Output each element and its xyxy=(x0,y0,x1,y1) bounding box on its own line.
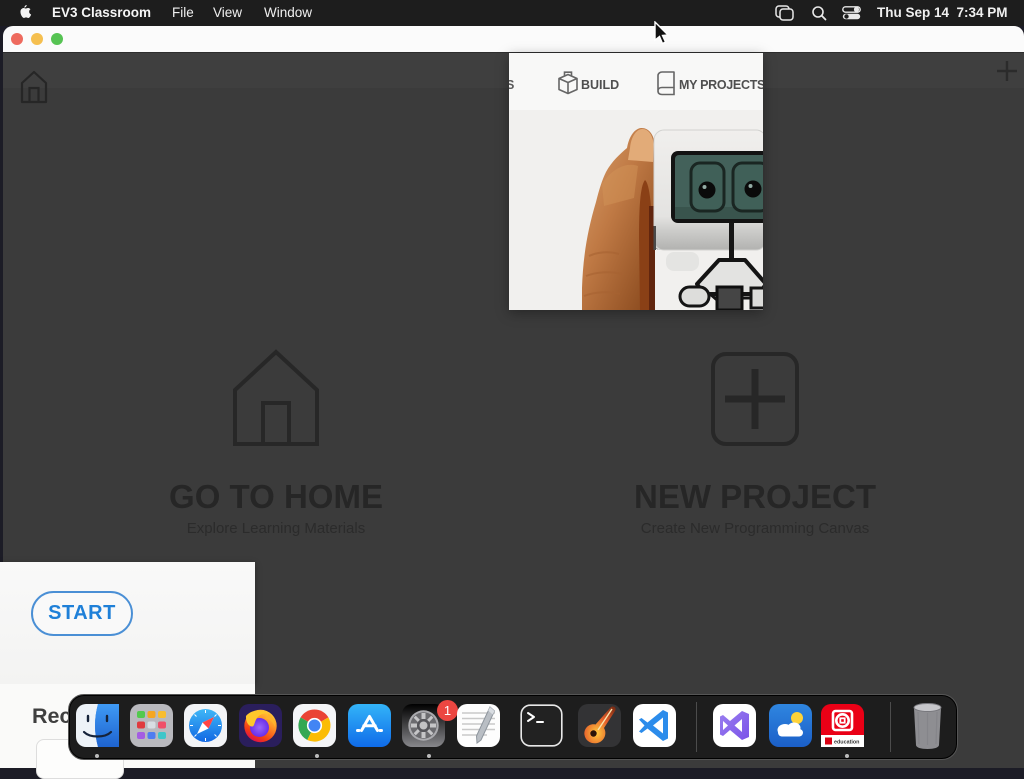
svg-text:education: education xyxy=(834,740,859,746)
